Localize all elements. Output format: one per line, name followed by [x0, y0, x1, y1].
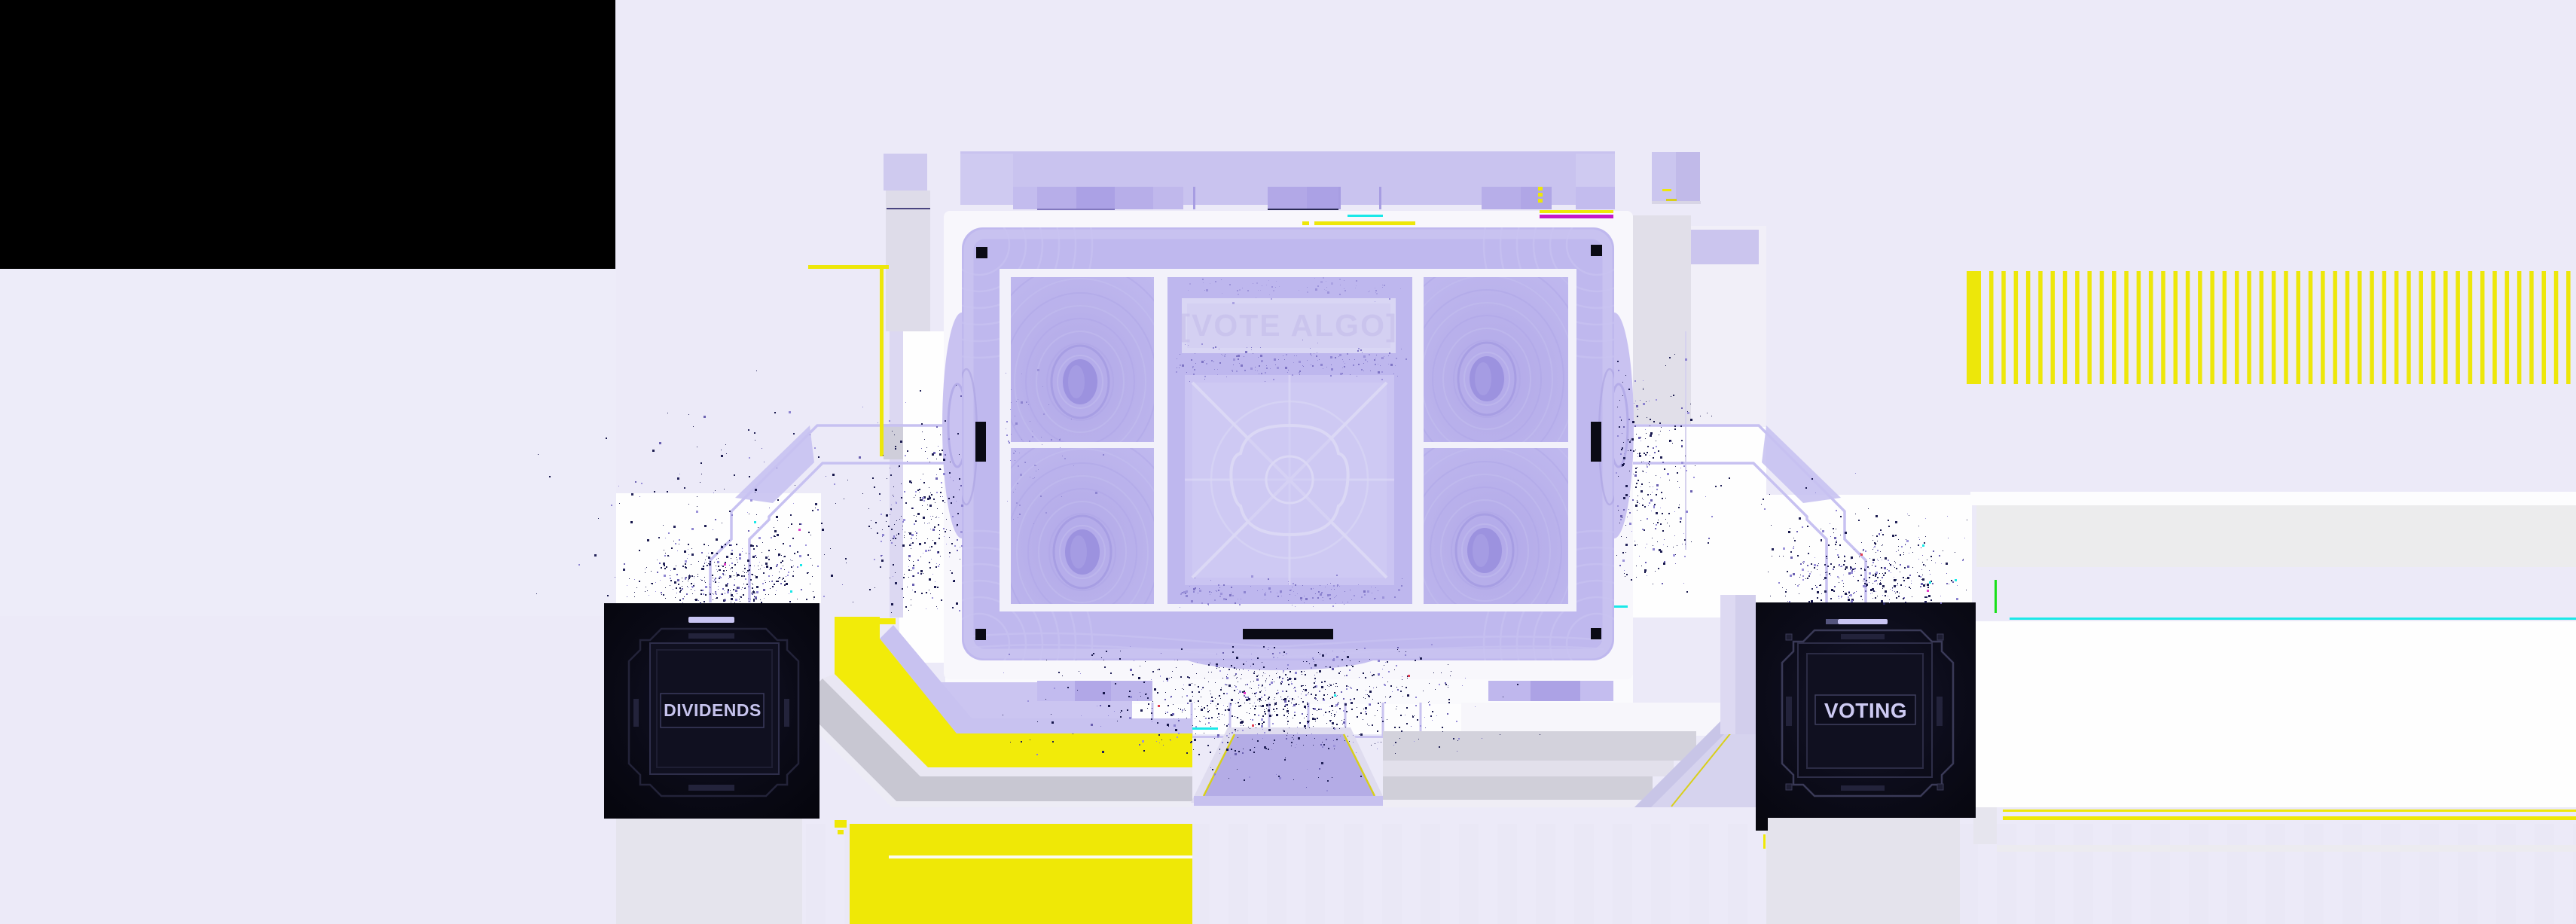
- svg-text:VOTING: VOTING: [1824, 699, 1907, 722]
- svg-text:[VOTE ALGO]: [VOTE ALGO]: [1180, 308, 1397, 343]
- svg-text:DIVIDENDS: DIVIDENDS: [664, 700, 762, 720]
